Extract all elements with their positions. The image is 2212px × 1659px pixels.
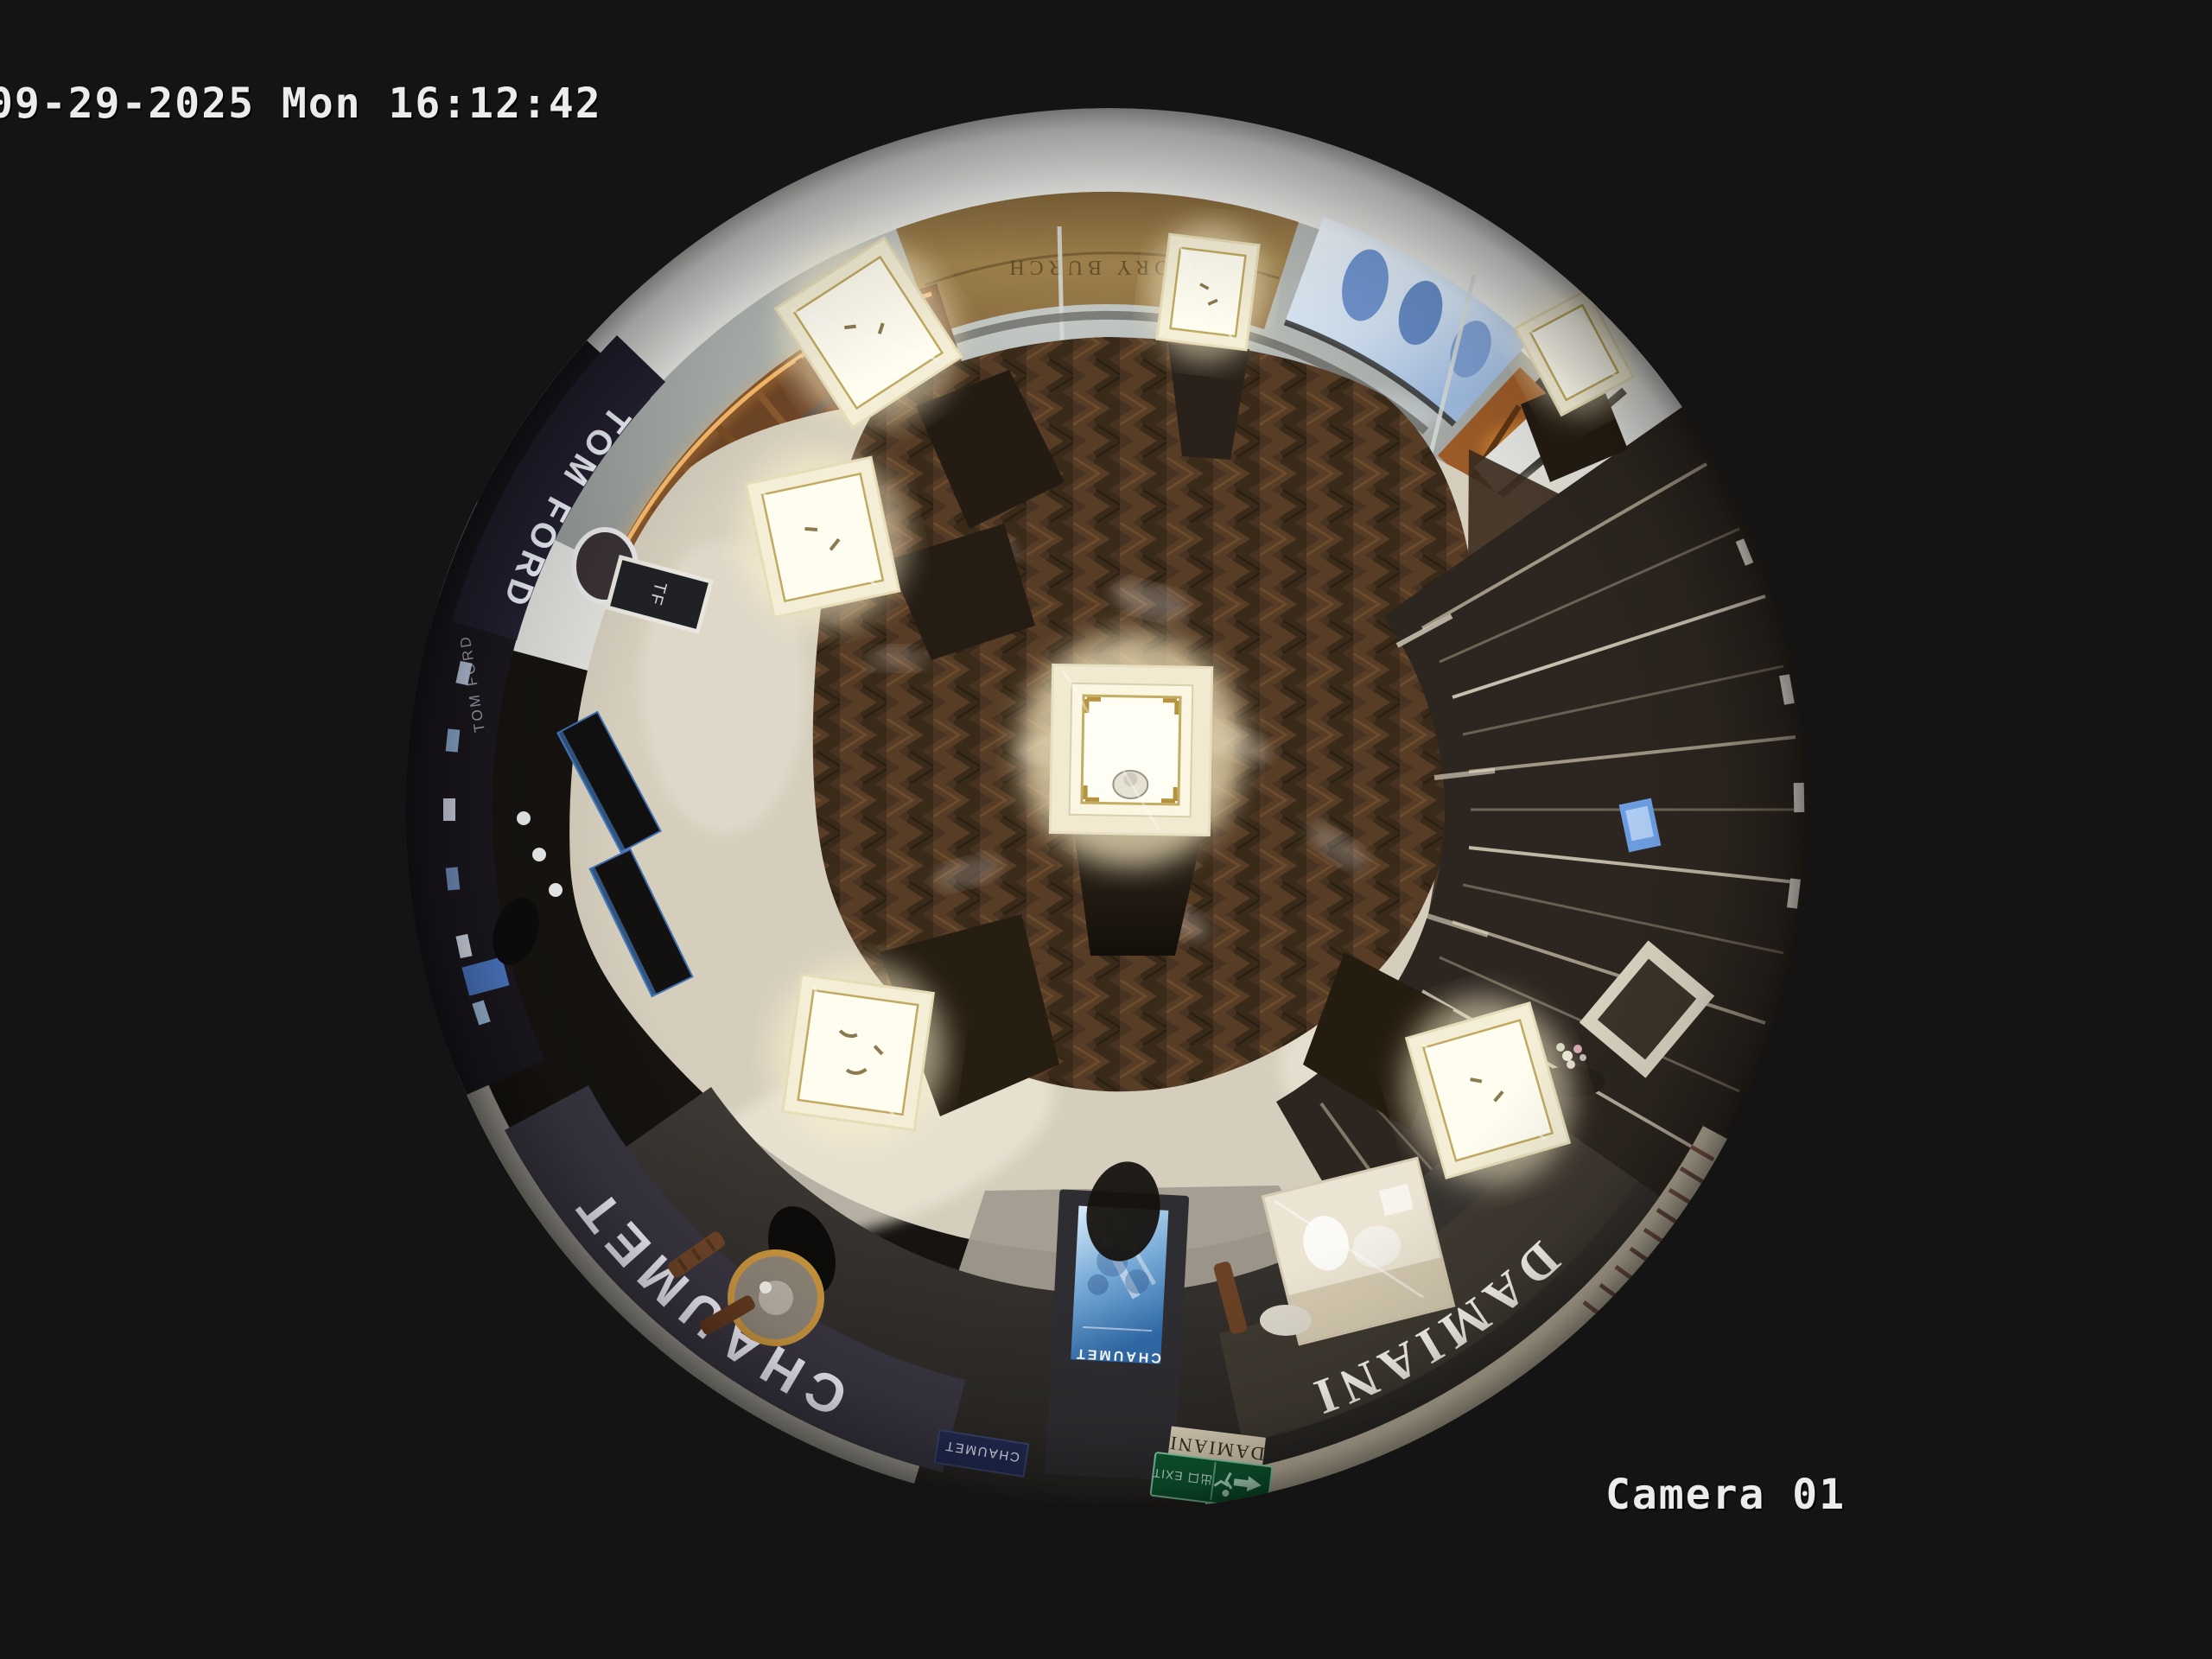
lens-vignette [406, 108, 1809, 1511]
osd-camera-label: Camera 01 [1605, 1474, 1846, 1516]
osd-timestamp: 09-29-2025 Mon 16:12:42 [0, 83, 602, 124]
cctv-frame: TORY BURCH [0, 0, 2212, 1659]
fisheye-view: TORY BURCH [0, 0, 2212, 1659]
